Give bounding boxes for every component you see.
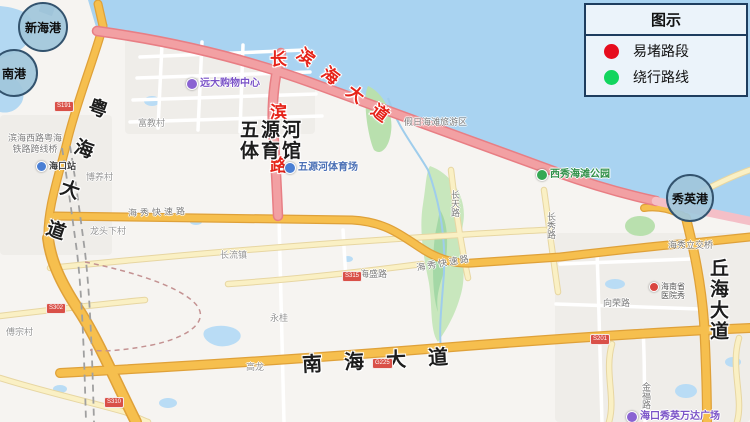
poi-label: 远大购物中心 xyxy=(200,78,260,89)
road-label-overpass: 滨海西路粤海 铁路跨线桥 xyxy=(8,133,62,155)
legend-item-detour: 绕行路线 xyxy=(586,66,746,95)
village-label: 永桂 xyxy=(270,313,288,323)
road-label-haisheng-lu: 海盛路 xyxy=(360,269,387,279)
road-label-haixiu-interchange: 海秀立交桥 xyxy=(668,240,713,250)
road-shield: S302 xyxy=(46,303,66,314)
road-label-changxiu-lu: 长秀路 xyxy=(546,212,556,239)
overpass-line1: 滨海西路粤海 xyxy=(8,133,62,144)
map-canvas[interactable]: S191 S315 G225 S302 S310 S201 海秀快速路 海秀快速… xyxy=(0,0,750,422)
poi-label: 西秀海滩公园 xyxy=(550,169,610,180)
road-shield: S191 xyxy=(54,101,74,112)
poi-wanda-plaza[interactable]: 海口秀英万达广场 xyxy=(626,411,720,422)
area-label-changliu-town: 长流镇 xyxy=(220,250,247,260)
stadium-title: 五源河 体育馆 xyxy=(240,120,303,162)
legend-title: 图示 xyxy=(586,5,746,36)
road-shield: S201 xyxy=(590,334,610,345)
poi-wuyuanhe-stadium[interactable]: 五源河体育场 xyxy=(284,162,358,174)
detour-swatch-icon xyxy=(604,70,619,85)
poi-label: 海口秀英万达广场 xyxy=(640,411,720,422)
village-label: 高龙 xyxy=(246,362,264,372)
road-label-changtian-lu: 长天路 xyxy=(450,190,460,217)
village-label: 龙头下村 xyxy=(90,226,126,236)
poi-label: 海南省 医院秀 xyxy=(661,282,685,300)
poi-label: 海口站 xyxy=(49,161,76,172)
port-badge-xinhai[interactable]: 新海港 xyxy=(18,2,68,52)
hospital-icon xyxy=(649,282,659,292)
legend-item-congested: 易堵路段 xyxy=(586,36,746,66)
poi-yuanda-mall[interactable]: 远大购物中心 xyxy=(186,78,260,90)
poi-haikou-station[interactable]: 海口站 xyxy=(36,161,76,172)
road-label-jinfu-lu: 金福路 xyxy=(641,382,651,409)
port-badge-xiuying[interactable]: 秀英港 xyxy=(666,174,714,222)
poi-xixiu-beach-park[interactable]: 西秀海滩公园 xyxy=(536,169,610,181)
hospital-label-line1: 海南省 xyxy=(661,282,685,291)
stadium-icon xyxy=(284,162,296,174)
train-station-icon xyxy=(36,161,47,172)
congested-swatch-icon xyxy=(604,44,619,59)
road-name-qiuhai-dadao: 丘海大道 xyxy=(704,258,731,342)
stadium-title-line2: 体育馆 xyxy=(240,141,303,162)
shopping-icon xyxy=(626,411,638,422)
overpass-line2: 铁路跨线桥 xyxy=(8,144,62,155)
legend-item-label: 易堵路段 xyxy=(633,41,689,61)
village-label: 傅宗村 xyxy=(6,327,33,337)
road-label-haixiu-expressway: 海秀快速路 xyxy=(128,206,188,218)
road-shield: S315 xyxy=(342,271,362,282)
hospital-label-line2: 医院秀 xyxy=(661,291,685,300)
stadium-title-line1: 五源河 xyxy=(240,120,303,141)
area-label-holiday-beach: 假日海滩旅游区 xyxy=(404,117,467,127)
legend-item-label: 绕行路线 xyxy=(633,67,689,87)
poi-hainan-hospital[interactable]: 海南省 医院秀 xyxy=(649,282,685,300)
road-label-xiangrong-lu: 向荣路 xyxy=(603,298,630,308)
village-label: 富教村 xyxy=(138,118,165,128)
road-shield: S310 xyxy=(104,397,124,408)
shopping-icon xyxy=(186,78,198,90)
park-icon xyxy=(536,169,548,181)
road-shield: G225 xyxy=(372,358,393,369)
poi-label: 五源河体育场 xyxy=(298,162,358,173)
village-label: 博养村 xyxy=(86,172,113,182)
legend-panel: 图示 易堵路段 绕行路线 xyxy=(584,3,748,97)
